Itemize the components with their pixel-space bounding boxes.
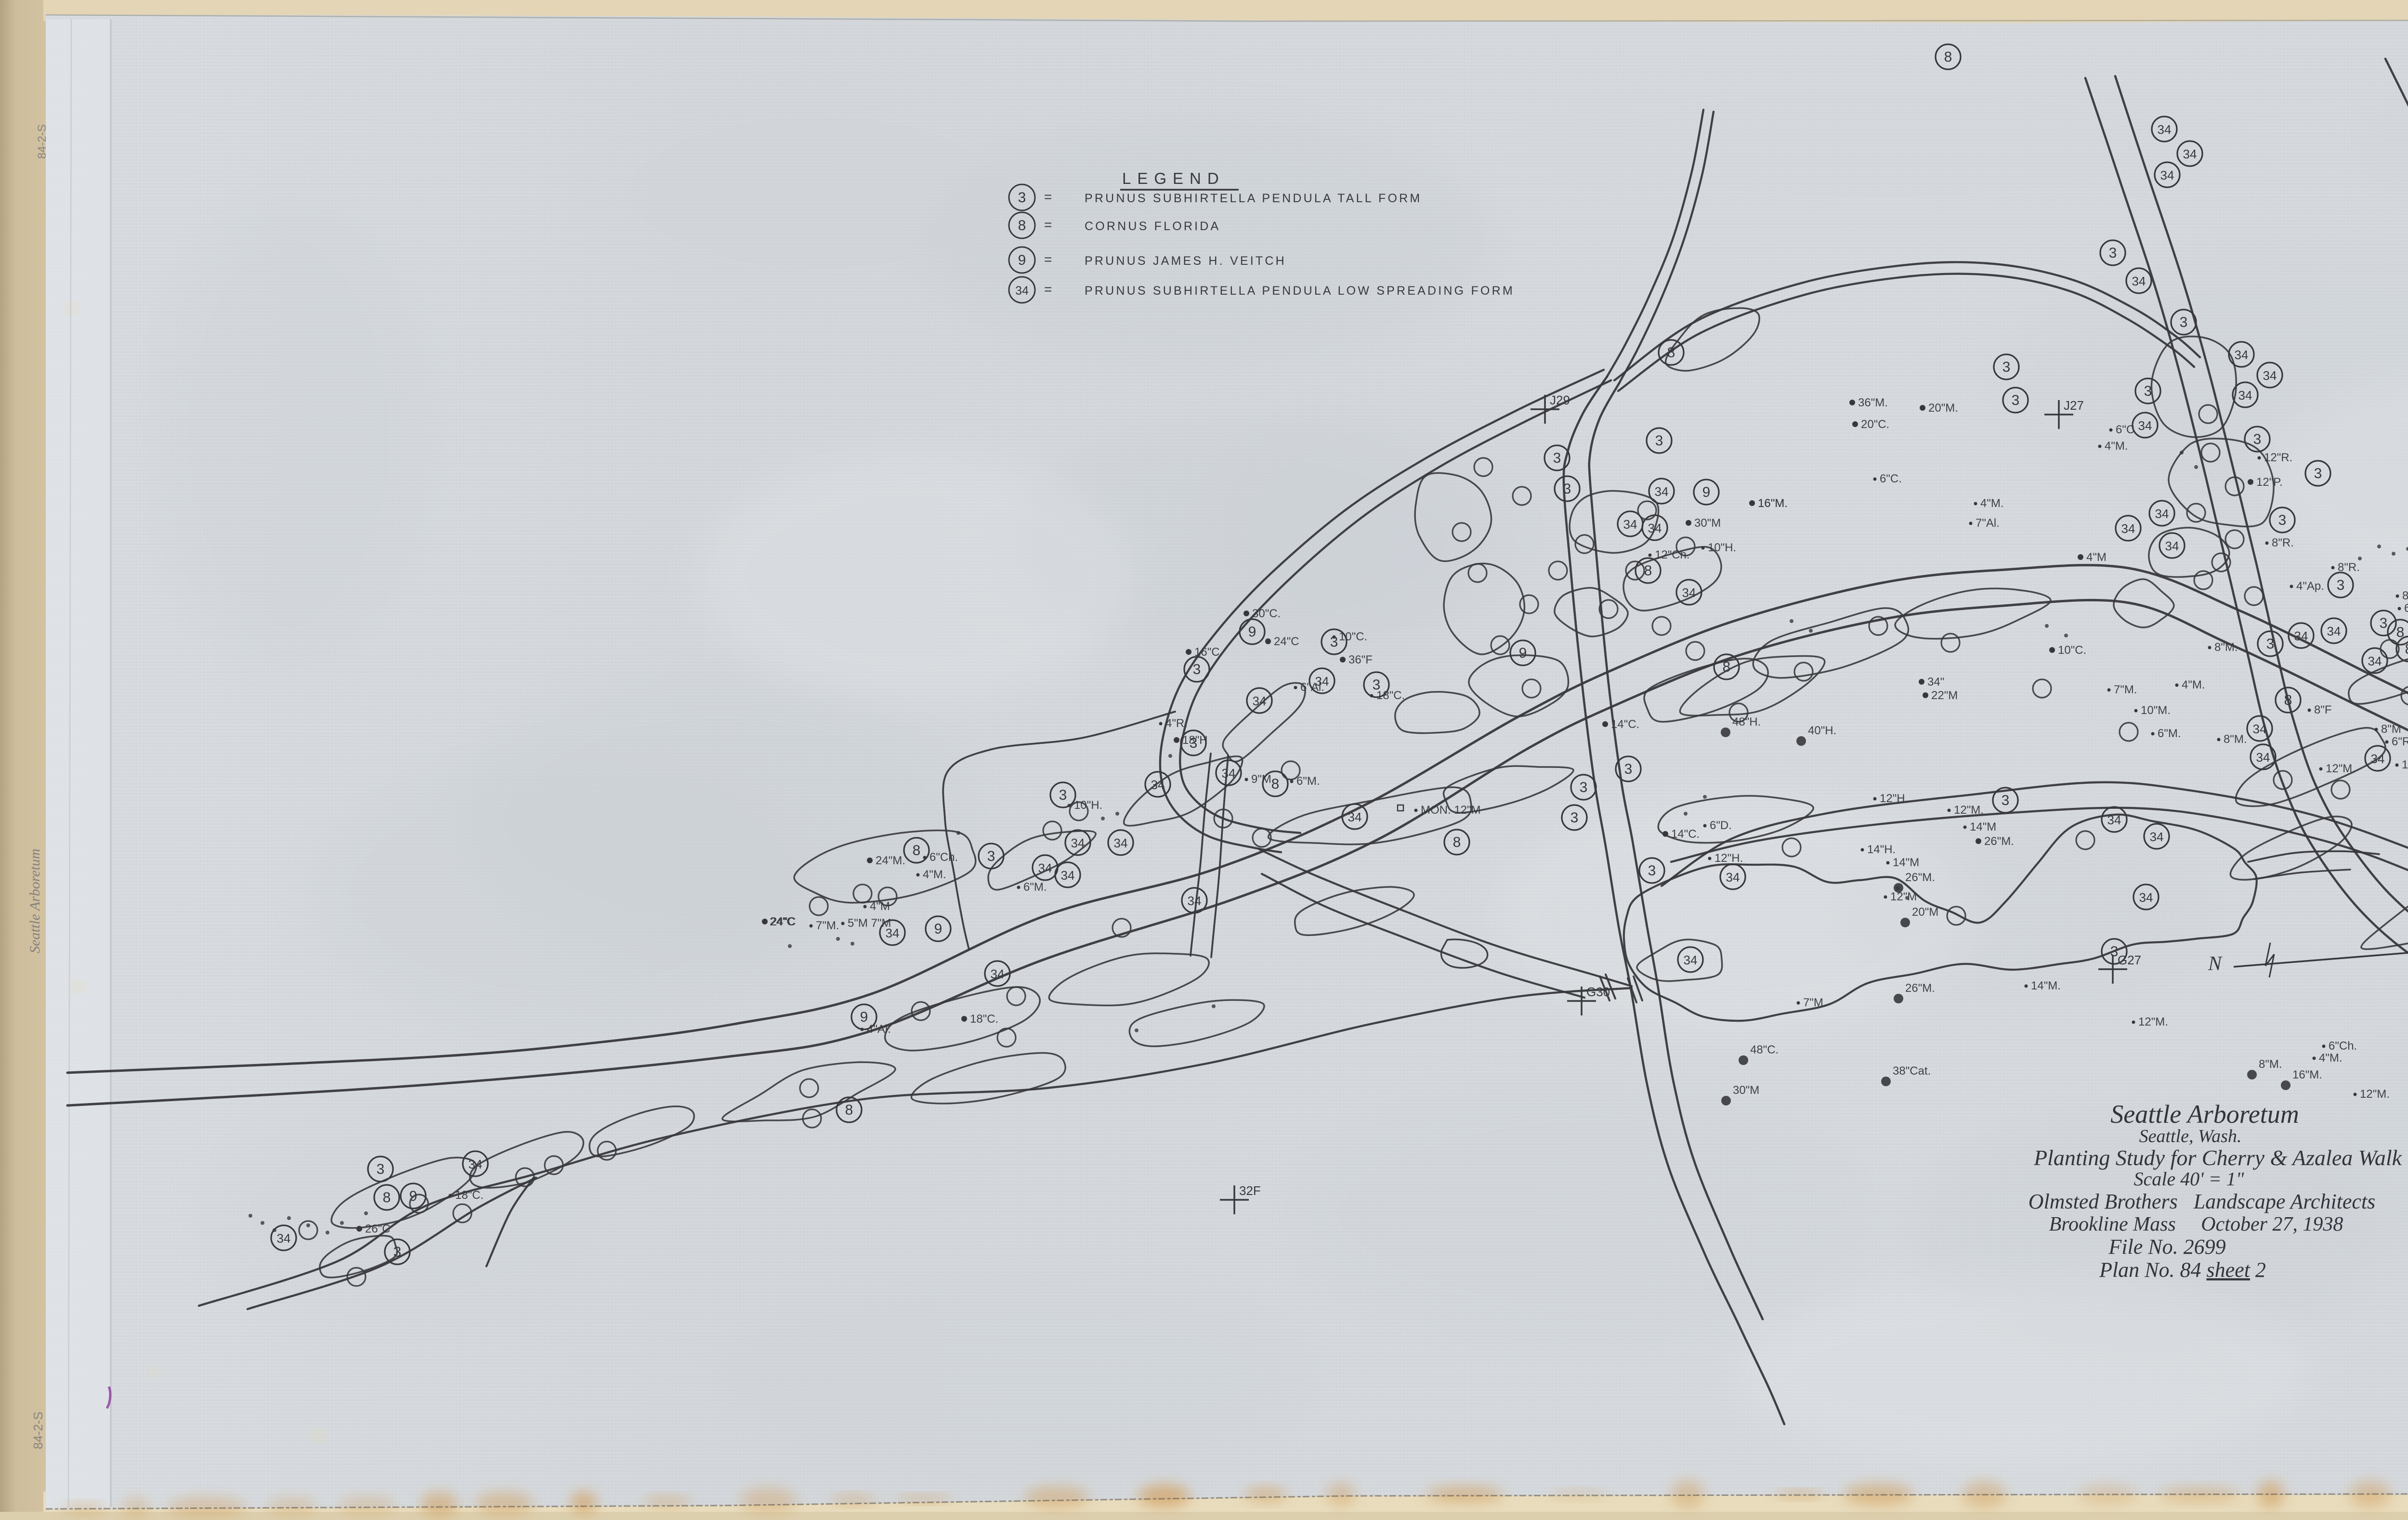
svg-text:34: 34 bbox=[1682, 585, 1696, 600]
svg-text:8"R.: 8"R. bbox=[2272, 536, 2294, 549]
svg-text:Seattle, Wash.: Seattle, Wash. bbox=[2139, 1126, 2242, 1146]
svg-text:8: 8 bbox=[383, 1190, 391, 1206]
svg-text:4"M.: 4"M. bbox=[1980, 497, 2004, 510]
svg-text:34: 34 bbox=[1623, 517, 1637, 532]
svg-text:34: 34 bbox=[1348, 810, 1362, 824]
svg-text:16"M.: 16"M. bbox=[1758, 497, 1788, 510]
svg-text:Seattle Arboretum: Seattle Arboretum bbox=[2110, 1100, 2299, 1129]
svg-text:34: 34 bbox=[2368, 654, 2382, 668]
svg-text:3: 3 bbox=[2253, 431, 2262, 447]
svg-text:12"H.: 12"H. bbox=[1880, 792, 1908, 805]
svg-text:8"R.: 8"R. bbox=[2338, 561, 2360, 574]
svg-text:6"R.: 6"R. bbox=[2404, 602, 2408, 615]
svg-text:Plan No. 84 sheet 2: Plan No. 84 sheet 2 bbox=[2099, 1258, 2266, 1282]
svg-text:3: 3 bbox=[2144, 383, 2152, 399]
svg-text:3: 3 bbox=[1570, 810, 1579, 826]
svg-text:34: 34 bbox=[1114, 836, 1128, 850]
svg-text:26"C: 26"C bbox=[365, 1222, 391, 1235]
svg-text:24"C: 24"C bbox=[1274, 635, 1299, 648]
svg-text:14"H.: 14"H. bbox=[1867, 843, 1896, 856]
svg-text:84-2-S: 84-2-S bbox=[36, 124, 49, 159]
svg-text:8: 8 bbox=[913, 843, 921, 858]
svg-text:12"M.: 12"M. bbox=[1954, 804, 1984, 817]
svg-text:14"C.: 14"C. bbox=[1671, 828, 1700, 841]
svg-text:Seattle Arboretum: Seattle Arboretum bbox=[27, 849, 43, 953]
svg-text:=: = bbox=[1044, 217, 1052, 232]
svg-text:34: 34 bbox=[2158, 122, 2172, 137]
svg-text:6"M.: 6"M. bbox=[2158, 727, 2181, 740]
svg-text:8: 8 bbox=[1453, 834, 1461, 850]
svg-text:34: 34 bbox=[2139, 890, 2153, 905]
svg-text:3: 3 bbox=[1018, 190, 1026, 206]
svg-text:10"C.: 10"C. bbox=[2058, 644, 2086, 657]
svg-text:6"R.: 6"R. bbox=[2392, 735, 2408, 748]
svg-text:34: 34 bbox=[2155, 507, 2169, 521]
svg-text:6"D.: 6"D. bbox=[1710, 819, 1732, 832]
svg-text:34: 34 bbox=[1038, 861, 1052, 875]
svg-text:34: 34 bbox=[1222, 766, 1236, 780]
svg-text:34: 34 bbox=[469, 1157, 483, 1171]
svg-text:34: 34 bbox=[2132, 274, 2146, 288]
svg-text:34: 34 bbox=[2238, 388, 2252, 403]
svg-text:G27: G27 bbox=[2118, 953, 2141, 967]
svg-text:84-2-S: 84-2-S bbox=[31, 1412, 45, 1449]
svg-text:34: 34 bbox=[1071, 836, 1085, 850]
svg-text:34: 34 bbox=[1253, 694, 1267, 708]
svg-text:8"M: 8"M bbox=[2381, 723, 2401, 736]
svg-text:Brookline Mass October 27,: Brookline Mass October 27, 1938 bbox=[2049, 1213, 2343, 1235]
svg-text:3: 3 bbox=[2002, 792, 2010, 808]
svg-text:8"M.: 8"M. bbox=[2224, 733, 2247, 746]
svg-text:MON. 12"M: MON. 12"M bbox=[1421, 804, 1481, 817]
svg-text:3: 3 bbox=[377, 1161, 385, 1177]
svg-text:22"M: 22"M bbox=[1931, 689, 1958, 702]
svg-text:8"F: 8"F bbox=[2314, 703, 2332, 716]
svg-text:10"H.: 10"H. bbox=[1074, 799, 1102, 812]
svg-text:16"C: 16"C bbox=[1194, 646, 1220, 659]
svg-text:J27: J27 bbox=[2064, 398, 2084, 413]
svg-text:34": 34" bbox=[1927, 676, 1944, 689]
svg-text:8: 8 bbox=[2284, 692, 2292, 708]
svg-text:12"M.: 12"M. bbox=[2402, 758, 2408, 771]
svg-text:18"C.: 18"C. bbox=[970, 1013, 998, 1026]
svg-text:10"H.: 10"H. bbox=[1708, 541, 1736, 554]
svg-text:10"C.: 10"C. bbox=[1339, 630, 1367, 643]
svg-text:48"C.: 48"C. bbox=[1750, 1043, 1779, 1056]
svg-text:30"M: 30"M bbox=[1733, 1084, 1759, 1097]
svg-text:34: 34 bbox=[1655, 484, 1669, 499]
svg-text:34: 34 bbox=[2263, 368, 2277, 383]
svg-text:34: 34 bbox=[1684, 953, 1698, 967]
svg-text:File No. 2699: File No. 2699 bbox=[2108, 1235, 2225, 1259]
svg-text:4"M: 4"M bbox=[870, 900, 890, 913]
svg-text:Olmsted Brothers Landscape A: Olmsted Brothers Landscape Architects bbox=[2028, 1190, 2376, 1213]
svg-text:8: 8 bbox=[1667, 345, 1675, 361]
svg-text:4"M.: 4"M. bbox=[923, 868, 946, 881]
svg-text:CORNUS FLORIDA: CORNUS FLORIDA bbox=[1085, 220, 1220, 233]
svg-text:18"C.: 18"C. bbox=[455, 1189, 484, 1202]
svg-text:PRUNUS SUBHIRTELLA PENDULA TA: PRUNUS SUBHIRTELLA PENDULA TALL FORM bbox=[1085, 192, 1422, 205]
svg-text:N: N bbox=[2208, 953, 2223, 975]
svg-text:6"M.: 6"M. bbox=[1023, 881, 1047, 894]
svg-text:3: 3 bbox=[2002, 359, 2011, 375]
svg-text:9: 9 bbox=[1248, 624, 1256, 640]
svg-text:24"M.: 24"M. bbox=[876, 854, 905, 867]
svg-text:34: 34 bbox=[2235, 348, 2249, 362]
svg-text:3: 3 bbox=[1059, 787, 1067, 803]
svg-text:34: 34 bbox=[2294, 629, 2308, 643]
svg-text:9: 9 bbox=[1702, 484, 1711, 500]
svg-text:20"M.: 20"M. bbox=[1928, 402, 1958, 415]
svg-text:12"M.: 12"M. bbox=[2326, 762, 2356, 775]
svg-text:34: 34 bbox=[2253, 722, 2267, 736]
svg-text:12"H.: 12"H. bbox=[1714, 852, 1743, 865]
svg-text:4"Al.: 4"Al. bbox=[867, 1023, 891, 1036]
svg-text:36"M.: 36"M. bbox=[1858, 396, 1888, 409]
svg-text:4"M.: 4"M. bbox=[2105, 440, 2128, 453]
svg-text:38"Cat.: 38"Cat. bbox=[1893, 1065, 1931, 1078]
svg-text:9"M.: 9"M. bbox=[1251, 773, 1275, 786]
svg-text:4"R.: 4"R. bbox=[1165, 717, 1188, 730]
svg-text:J29: J29 bbox=[1550, 393, 1570, 407]
svg-text:3: 3 bbox=[2110, 944, 2119, 960]
svg-text:34: 34 bbox=[1648, 521, 1662, 535]
svg-text:40"H.: 40"H. bbox=[1808, 724, 1836, 737]
svg-text:14"M.: 14"M. bbox=[2031, 979, 2061, 992]
svg-text:34: 34 bbox=[991, 967, 1005, 981]
svg-text:3: 3 bbox=[2266, 636, 2275, 652]
svg-text:8"M.: 8"M. bbox=[2214, 641, 2238, 654]
svg-text:7"M.: 7"M. bbox=[1803, 996, 1827, 1009]
svg-text:3: 3 bbox=[2314, 466, 2322, 481]
svg-text:18"H: 18"H bbox=[1182, 734, 1208, 747]
svg-text:3: 3 bbox=[2337, 577, 2345, 593]
svg-text:8"M.: 8"M. bbox=[2259, 1058, 2282, 1071]
svg-text:6"Ch.: 6"Ch. bbox=[2329, 1039, 2357, 1052]
svg-text:18"C.: 18"C. bbox=[1376, 689, 1405, 702]
svg-text:8"M: 8"M bbox=[2402, 589, 2408, 602]
svg-text:34: 34 bbox=[1726, 870, 1740, 884]
svg-text:3: 3 bbox=[1655, 433, 1663, 449]
svg-text:14"M: 14"M bbox=[1970, 820, 1996, 833]
svg-text:4"Ap.: 4"Ap. bbox=[2296, 580, 2324, 593]
svg-text:34: 34 bbox=[1151, 778, 1165, 792]
svg-text:30"M: 30"M bbox=[1694, 517, 1721, 530]
svg-text:26"M.: 26"M. bbox=[1905, 871, 1935, 884]
svg-text:3: 3 bbox=[1624, 761, 1633, 777]
svg-text:6"M.: 6"M. bbox=[1296, 775, 1320, 788]
svg-text:=: = bbox=[1044, 189, 1052, 204]
svg-text:34: 34 bbox=[2121, 521, 2135, 536]
svg-text:6"C.: 6"C. bbox=[1880, 472, 1902, 485]
svg-text:3: 3 bbox=[2278, 512, 2287, 528]
svg-text:3: 3 bbox=[2180, 314, 2188, 330]
svg-text:LEGEND: LEGEND bbox=[1122, 169, 1225, 187]
svg-text:3: 3 bbox=[2109, 245, 2117, 261]
svg-text:Scale 40' = 1": Scale 40' = 1" bbox=[2134, 1168, 2244, 1190]
svg-text:34: 34 bbox=[2371, 752, 2385, 766]
svg-text:6"C: 6"C bbox=[2116, 423, 2134, 436]
svg-text:3: 3 bbox=[1193, 662, 1201, 677]
svg-text:12"Ch.: 12"Ch. bbox=[1655, 548, 1690, 561]
svg-text:34: 34 bbox=[1061, 868, 1075, 883]
svg-text:12"P.: 12"P. bbox=[2256, 476, 2283, 489]
svg-text:3: 3 bbox=[1580, 779, 1588, 795]
svg-text:8: 8 bbox=[845, 1102, 853, 1118]
svg-text:7"M.: 7"M. bbox=[816, 919, 839, 932]
svg-text:30"C.: 30"C. bbox=[1252, 607, 1281, 620]
svg-text:8: 8 bbox=[1944, 49, 1952, 65]
svg-text:34: 34 bbox=[277, 1231, 291, 1246]
svg-text:36"F: 36"F bbox=[1348, 653, 1373, 666]
svg-text:20"M: 20"M bbox=[1912, 906, 1938, 919]
svg-text:=: = bbox=[1044, 282, 1052, 297]
svg-text:6"Ch.: 6"Ch. bbox=[929, 851, 958, 864]
svg-text:34: 34 bbox=[2256, 750, 2270, 765]
svg-text:24"C: 24"C bbox=[770, 915, 795, 928]
svg-text:3: 3 bbox=[1553, 450, 1561, 466]
svg-text:26"M.: 26"M. bbox=[1984, 835, 2014, 848]
svg-text:16"M.: 16"M. bbox=[2292, 1068, 2322, 1081]
svg-text:34: 34 bbox=[2138, 418, 2152, 433]
svg-text:12"R.: 12"R. bbox=[2264, 451, 2292, 464]
svg-text:14"C.: 14"C. bbox=[1611, 718, 1639, 731]
svg-text:34: 34 bbox=[2107, 813, 2121, 827]
svg-text:12"M.: 12"M. bbox=[2360, 1088, 2390, 1101]
svg-text:3: 3 bbox=[2012, 392, 2020, 408]
svg-text:8: 8 bbox=[1644, 563, 1652, 579]
svg-text:3: 3 bbox=[393, 1244, 402, 1260]
svg-text:48"H.: 48"H. bbox=[1732, 715, 1761, 728]
svg-text:34: 34 bbox=[2327, 624, 2341, 638]
svg-text:3: 3 bbox=[1563, 481, 1571, 497]
svg-text:4"M: 4"M bbox=[2086, 551, 2107, 564]
svg-text:9: 9 bbox=[934, 921, 942, 937]
svg-text:PRUNUS JAMES H. VEITCH: PRUNUS JAMES H. VEITCH bbox=[1085, 254, 1286, 268]
svg-text:32F: 32F bbox=[1239, 1183, 1261, 1198]
svg-text:3: 3 bbox=[2380, 615, 2388, 631]
svg-text:8: 8 bbox=[2405, 641, 2408, 657]
svg-text:3: 3 bbox=[987, 848, 995, 864]
svg-text:3: 3 bbox=[1648, 863, 1656, 879]
svg-text:Planting Study for Cherry & Az: Planting Study for Cherry & Azalea Walk bbox=[2033, 1145, 2403, 1170]
svg-text:6"Al.: 6"Al. bbox=[1300, 681, 1324, 694]
svg-text:14"M: 14"M bbox=[1893, 856, 1919, 869]
svg-text:34: 34 bbox=[1015, 284, 1029, 298]
svg-text:G30: G30 bbox=[1586, 985, 1610, 999]
svg-text:8: 8 bbox=[1018, 218, 1026, 234]
svg-text:9: 9 bbox=[1018, 252, 1026, 268]
svg-text:34: 34 bbox=[2165, 539, 2179, 553]
svg-text:26"M.: 26"M. bbox=[1905, 982, 1935, 995]
svg-text:5"M 7"M: 5"M 7"M bbox=[848, 917, 891, 930]
svg-text:10"M.: 10"M. bbox=[2141, 704, 2171, 717]
svg-text:PRUNUS SUBHIRTELLA PENDULA LO: PRUNUS SUBHIRTELLA PENDULA LOW SPREADING… bbox=[1085, 284, 1515, 298]
svg-text:7"Al.: 7"Al. bbox=[1976, 517, 2000, 530]
svg-text:=: = bbox=[1044, 252, 1052, 267]
svg-text:12"M.: 12"M. bbox=[2138, 1015, 2168, 1028]
svg-text:7"M.: 7"M. bbox=[2114, 683, 2137, 696]
svg-text:34: 34 bbox=[1188, 894, 1202, 908]
svg-text:12"M: 12"M bbox=[1890, 890, 1917, 903]
svg-text:4"M.: 4"M. bbox=[2319, 1052, 2343, 1065]
svg-text:34: 34 bbox=[2183, 147, 2197, 161]
svg-text:4"M.: 4"M. bbox=[2182, 678, 2205, 691]
svg-text:9: 9 bbox=[1519, 645, 1527, 661]
svg-text:8: 8 bbox=[1723, 659, 1731, 675]
svg-text:20"C.: 20"C. bbox=[1861, 418, 1889, 431]
svg-text:34: 34 bbox=[2150, 830, 2164, 844]
svg-text:34: 34 bbox=[2160, 168, 2174, 182]
